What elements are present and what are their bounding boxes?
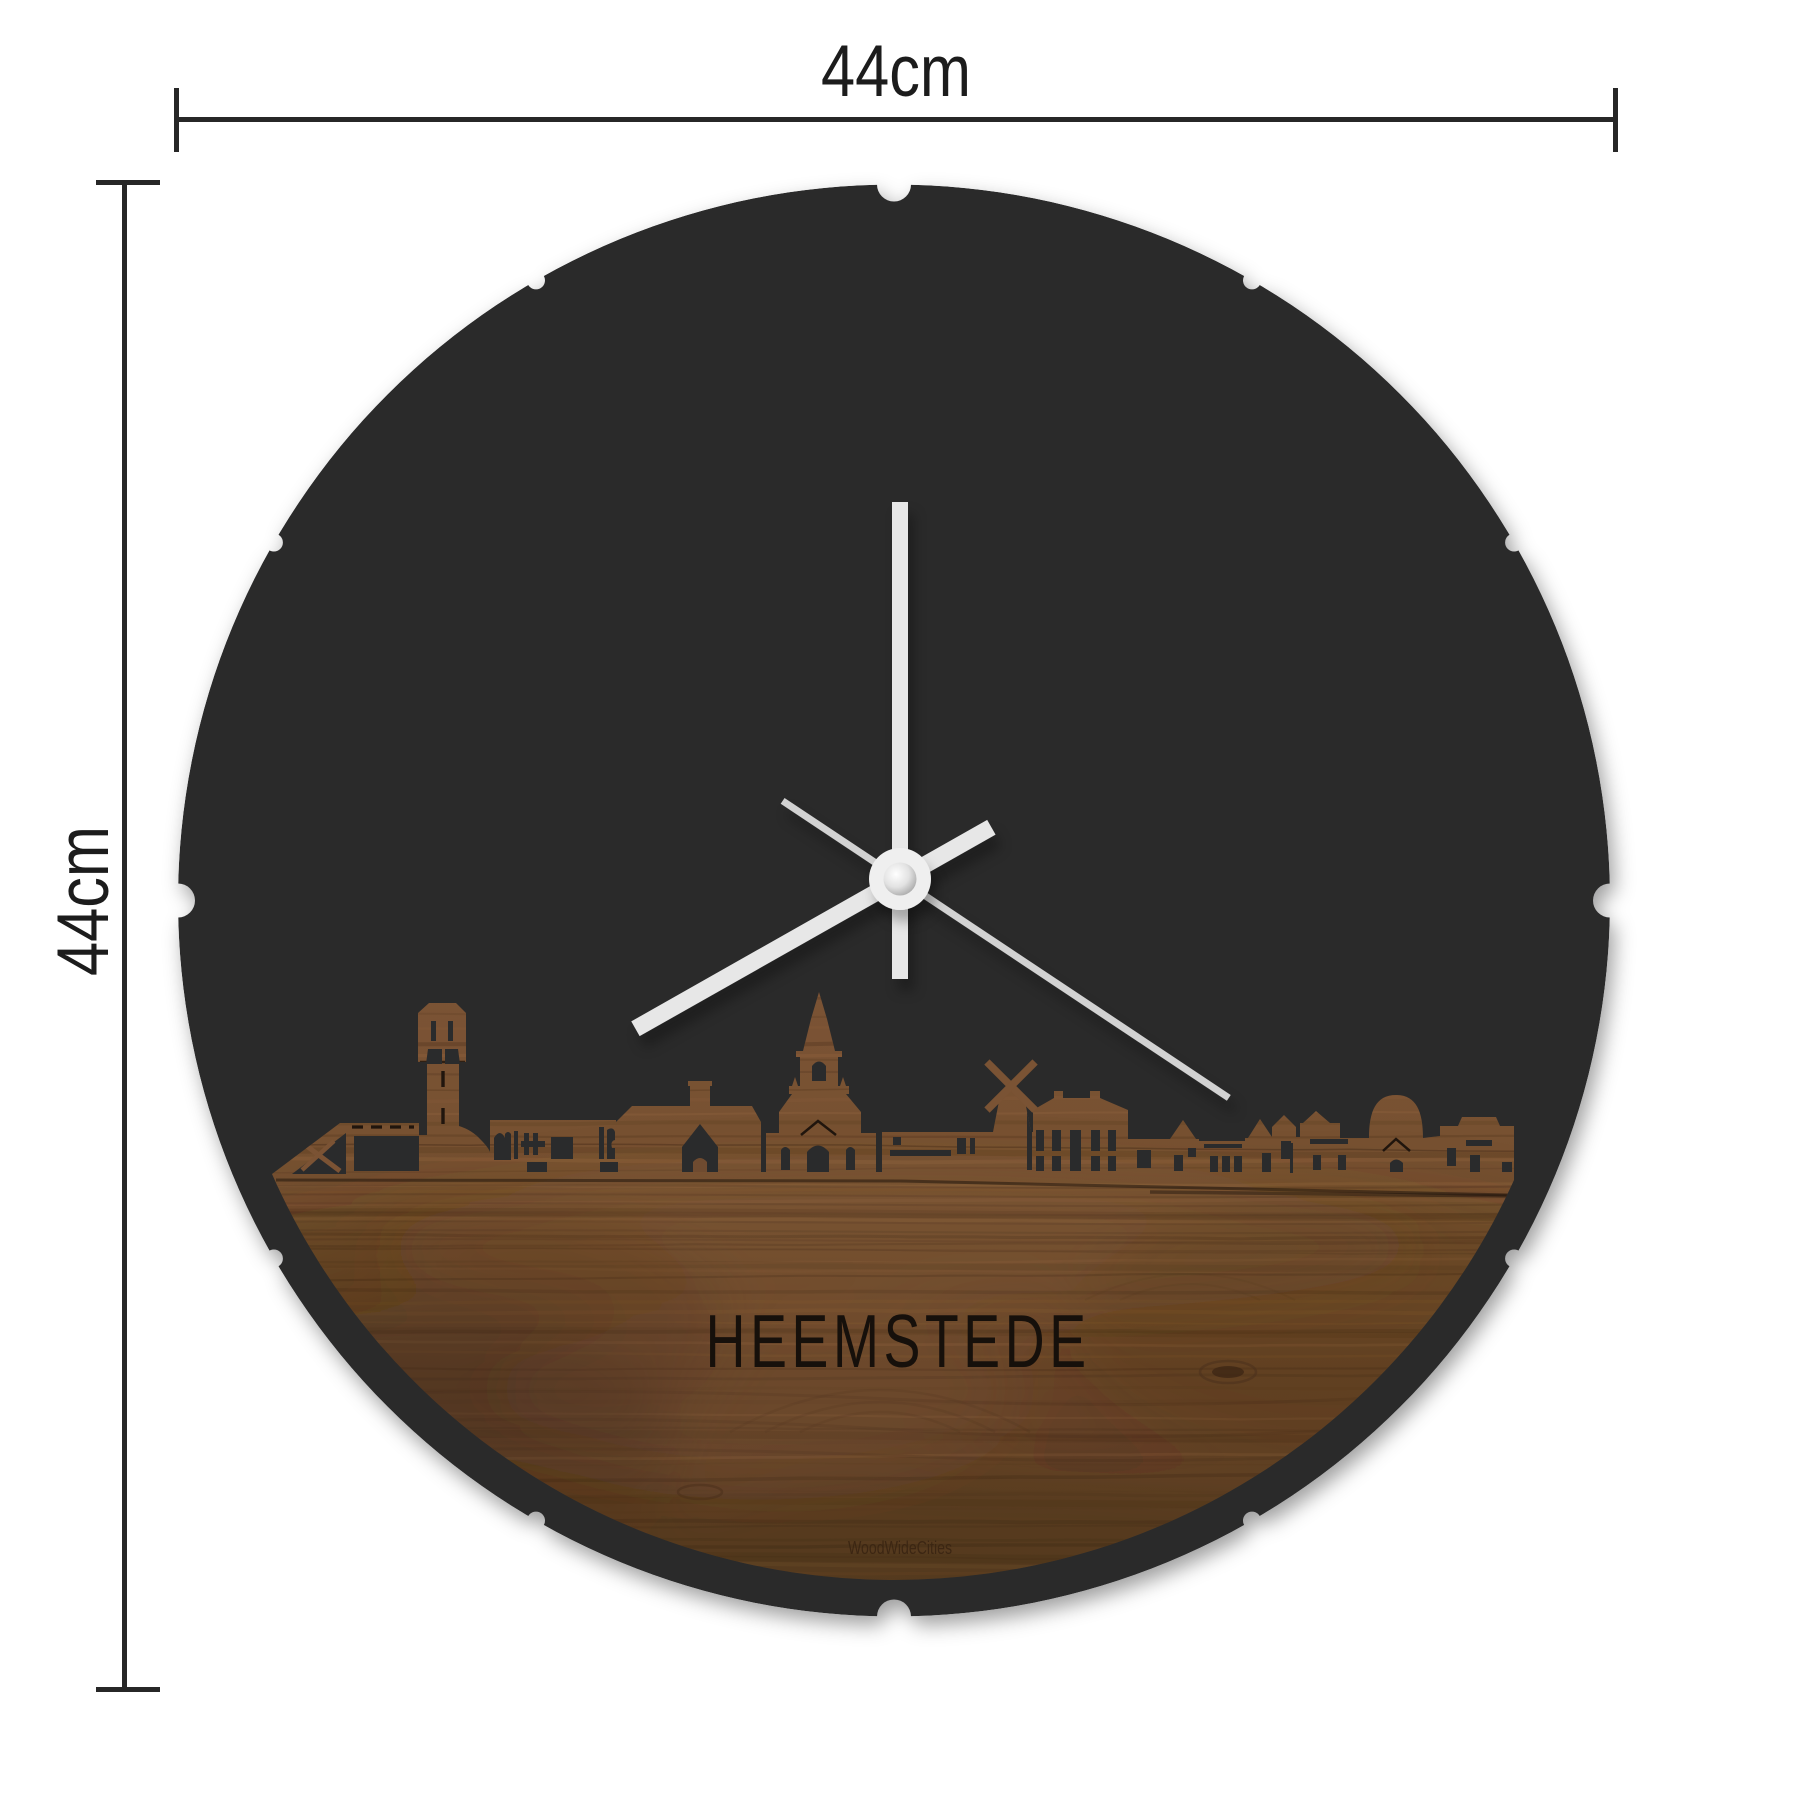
svg-text:44cm: 44cm (43, 826, 124, 976)
svg-text:WoodWideCities: WoodWideCities (848, 1538, 952, 1558)
svg-text:44cm: 44cm (821, 31, 971, 112)
svg-text:HEEMSTEDE: HEEMSTEDE (706, 1299, 1091, 1383)
